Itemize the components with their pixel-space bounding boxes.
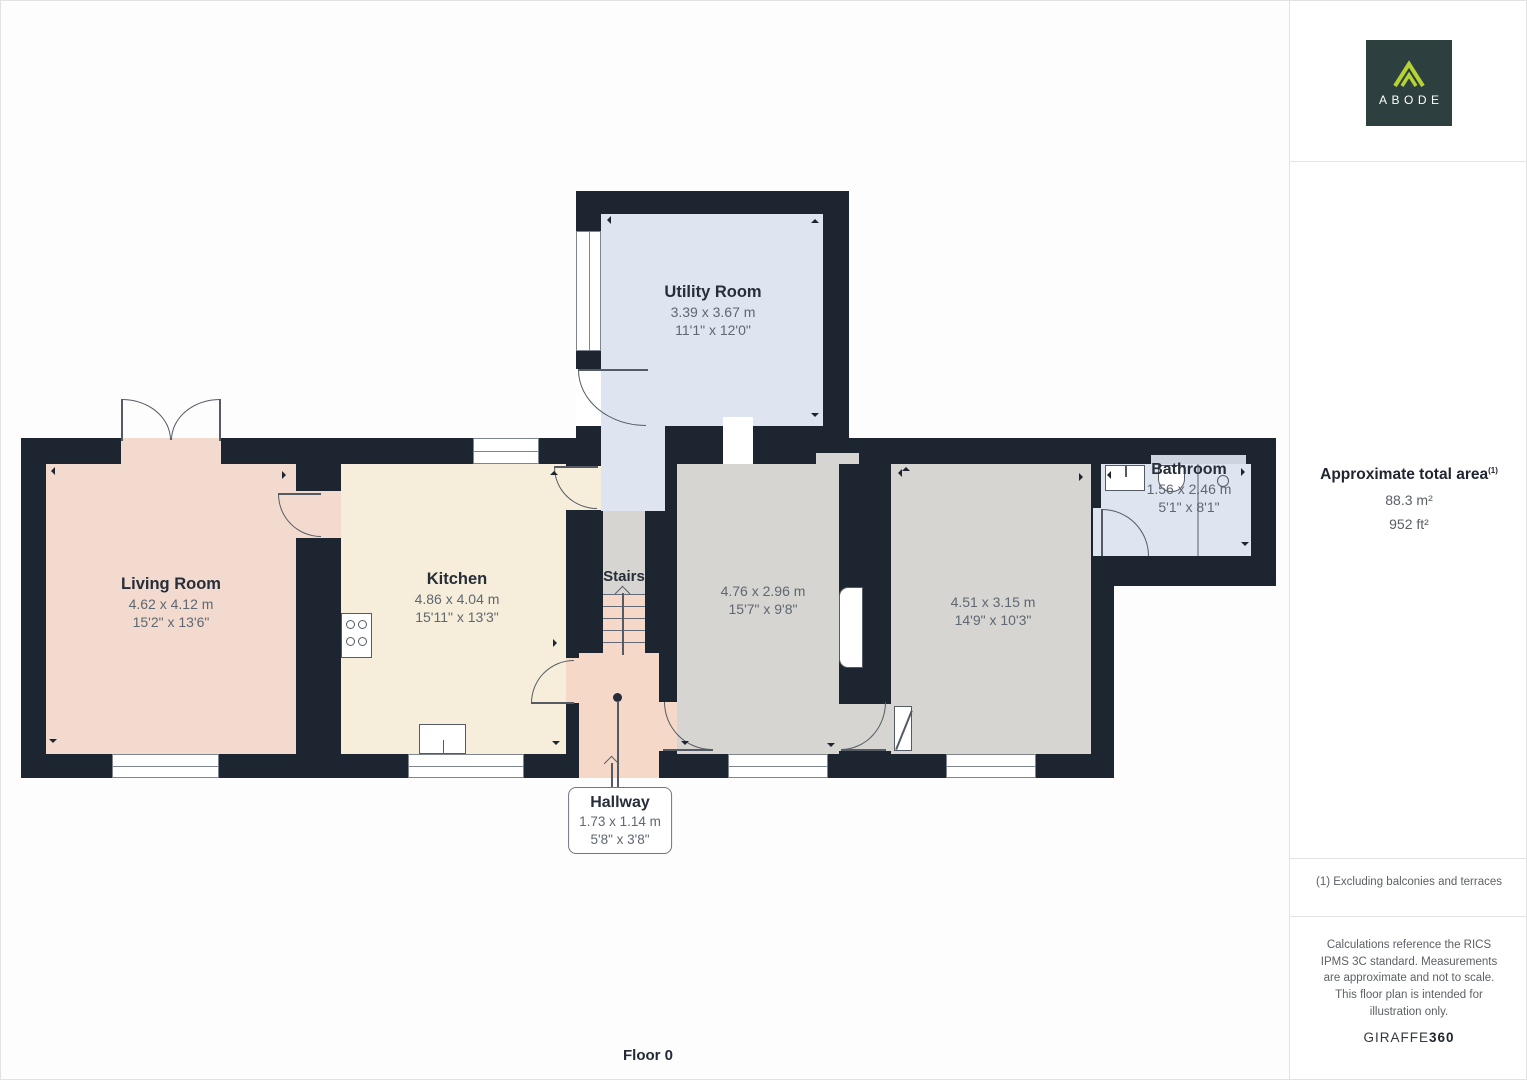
measure-arrow-icon [47,467,55,475]
total-area-block: Approximate total area(1) 88.3 m² 952 ft… [1290,466,1527,532]
room-name: Bathroom [1147,460,1232,480]
total-area-imperial: 952 ft² [1290,516,1527,532]
measure-arrow-icon [603,216,611,224]
french-door-left-arc [122,399,171,440]
floorplan-page: Utility Room 3.39 x 3.67 m 11'1" x 12'0"… [0,0,1527,1080]
room-b-label: 4.51 x 3.15 m 14'9" x 10'3" [951,593,1036,629]
sidebar-divider [1290,161,1527,162]
room-dims-imperial: 5'1" x 8'1" [1147,498,1232,516]
total-area-title: Approximate total area(1) [1290,466,1527,484]
room-a-label: 4.76 x 2.96 m 15'7" x 9'8" [721,582,806,618]
room-dims-metric: 4.62 x 4.12 m [121,595,221,613]
measure-arrow-icon [894,469,902,477]
radiator-icon [894,706,912,751]
room-a-recess [816,453,859,464]
living-room-label: Living Room 4.62 x 4.12 m 15'2" x 13'6" [121,574,221,631]
measure-arrow-icon [550,467,558,475]
room-dims-imperial: 14'9" x 10'3" [951,611,1036,629]
kitchen-top-window [473,438,539,464]
stove-icon [341,613,372,658]
room-b-window [946,754,1036,778]
room-name: Hallway [579,793,661,813]
abode-logo: ABODE [1366,40,1452,126]
room-name: Utility Room [664,282,761,303]
floor-label: Floor 0 [623,1047,673,1064]
utility-window [576,231,601,351]
kitchen-sink-icon [419,724,466,754]
room-dims-metric: 4.76 x 2.96 m [721,582,806,600]
kitchen-label: Kitchen 4.86 x 4.04 m 15'11" x 13'3" [415,569,500,626]
corridor-area [601,426,665,511]
measure-arrow-icon [49,739,57,747]
room-dims-metric: 1.73 x 1.14 m [579,813,661,831]
sidebar-divider [1290,858,1527,859]
living-room-window [112,754,219,778]
footnote-text: (1) Excluding balconies and terraces [1290,876,1527,888]
measure-arrow-icon [553,639,561,647]
stairs-label: Stairs [603,568,645,587]
sidebar-divider [1290,916,1527,917]
room-dims-metric: 1.56 x 2.46 m [1147,480,1232,498]
room-dims-imperial: 5'8" x 3'8" [579,831,661,849]
giraffe360-brand-name: GIRAFFE [1363,1030,1429,1045]
measure-arrow-icon [681,741,689,749]
stairs-arrow-stem [622,593,624,655]
footnote-ref: (1) [1488,466,1498,475]
french-door-right-leaf [219,399,221,441]
abode-logo-text: ABODE [1379,93,1444,107]
measure-arrow-icon [842,466,850,474]
kitchen-bottom-window [408,754,524,778]
bathroom-sink-icon [1105,465,1145,491]
room-name: Stairs [603,568,645,587]
measure-arrow-icon [811,215,819,223]
stairs-treads [603,594,645,654]
hallway-leader-line [617,701,619,787]
room-dims-metric: 4.51 x 3.15 m [951,593,1036,611]
bathroom-label: Bathroom 1.56 x 2.46 m 5'1" x 8'1" [1147,460,1232,516]
french-door-right-arc [171,399,220,440]
measure-arrow-icon [552,741,560,749]
room-name: Kitchen [415,569,500,590]
measure-arrow-icon [811,413,819,421]
room-dims-imperial: 15'7" x 9'8" [721,600,806,618]
room-a-window [728,754,828,778]
bathroom-door-leaf [1101,509,1103,556]
measure-arrow-icon [1241,542,1249,550]
french-door-left-leaf [121,399,123,441]
info-sidebar: ABODE Approximate total area(1) 88.3 m² … [1289,1,1527,1079]
living-kitchen-door-leaf [278,493,321,495]
utility-room-label: Utility Room 3.39 x 3.67 m 11'1" x 12'0" [664,282,761,339]
measure-arrow-icon [1241,468,1249,476]
room-ab-door-leaf [841,749,886,751]
abode-chevron-icon [1388,59,1430,89]
room-dims-imperial: 11'1" x 12'0" [664,321,761,339]
disclaimer-text: Calculations reference the RICS IPMS 3C … [1314,937,1504,1020]
room-dims-metric: 3.39 x 3.67 m [664,303,761,321]
utility-door-leaf [578,369,648,371]
room-dims-imperial: 15'11" x 13'3" [415,608,500,626]
hallway-room-a-door-leaf [663,749,713,751]
floor-plan: Utility Room 3.39 x 3.67 m 11'1" x 12'0"… [1,1,1289,1080]
room-dims-metric: 4.86 x 4.04 m [415,590,500,608]
room-name: Living Room [121,574,221,595]
measure-arrow-icon [902,463,910,471]
measure-arrow-icon [1079,473,1087,481]
measure-arrow-icon [282,471,290,479]
total-area-metric: 88.3 m² [1290,492,1527,508]
kitchen-hallway-door-leaf [531,702,574,704]
hallway-callout: Hallway 1.73 x 1.14 m 5'8" x 3'8" [568,787,672,854]
room-dims-imperial: 15'2" x 13'6" [121,613,221,631]
giraffe360-brand: GIRAFFE360 [1290,1030,1527,1045]
utility-passage-opening [723,417,753,464]
giraffe360-brand-suffix: 360 [1429,1030,1455,1045]
french-door-opening [121,438,221,464]
measure-arrow-icon [827,743,835,751]
fireplace-alcove [839,587,863,668]
measure-arrow-icon [1103,471,1111,479]
kitchen-corridor-door-leaf [554,466,598,468]
